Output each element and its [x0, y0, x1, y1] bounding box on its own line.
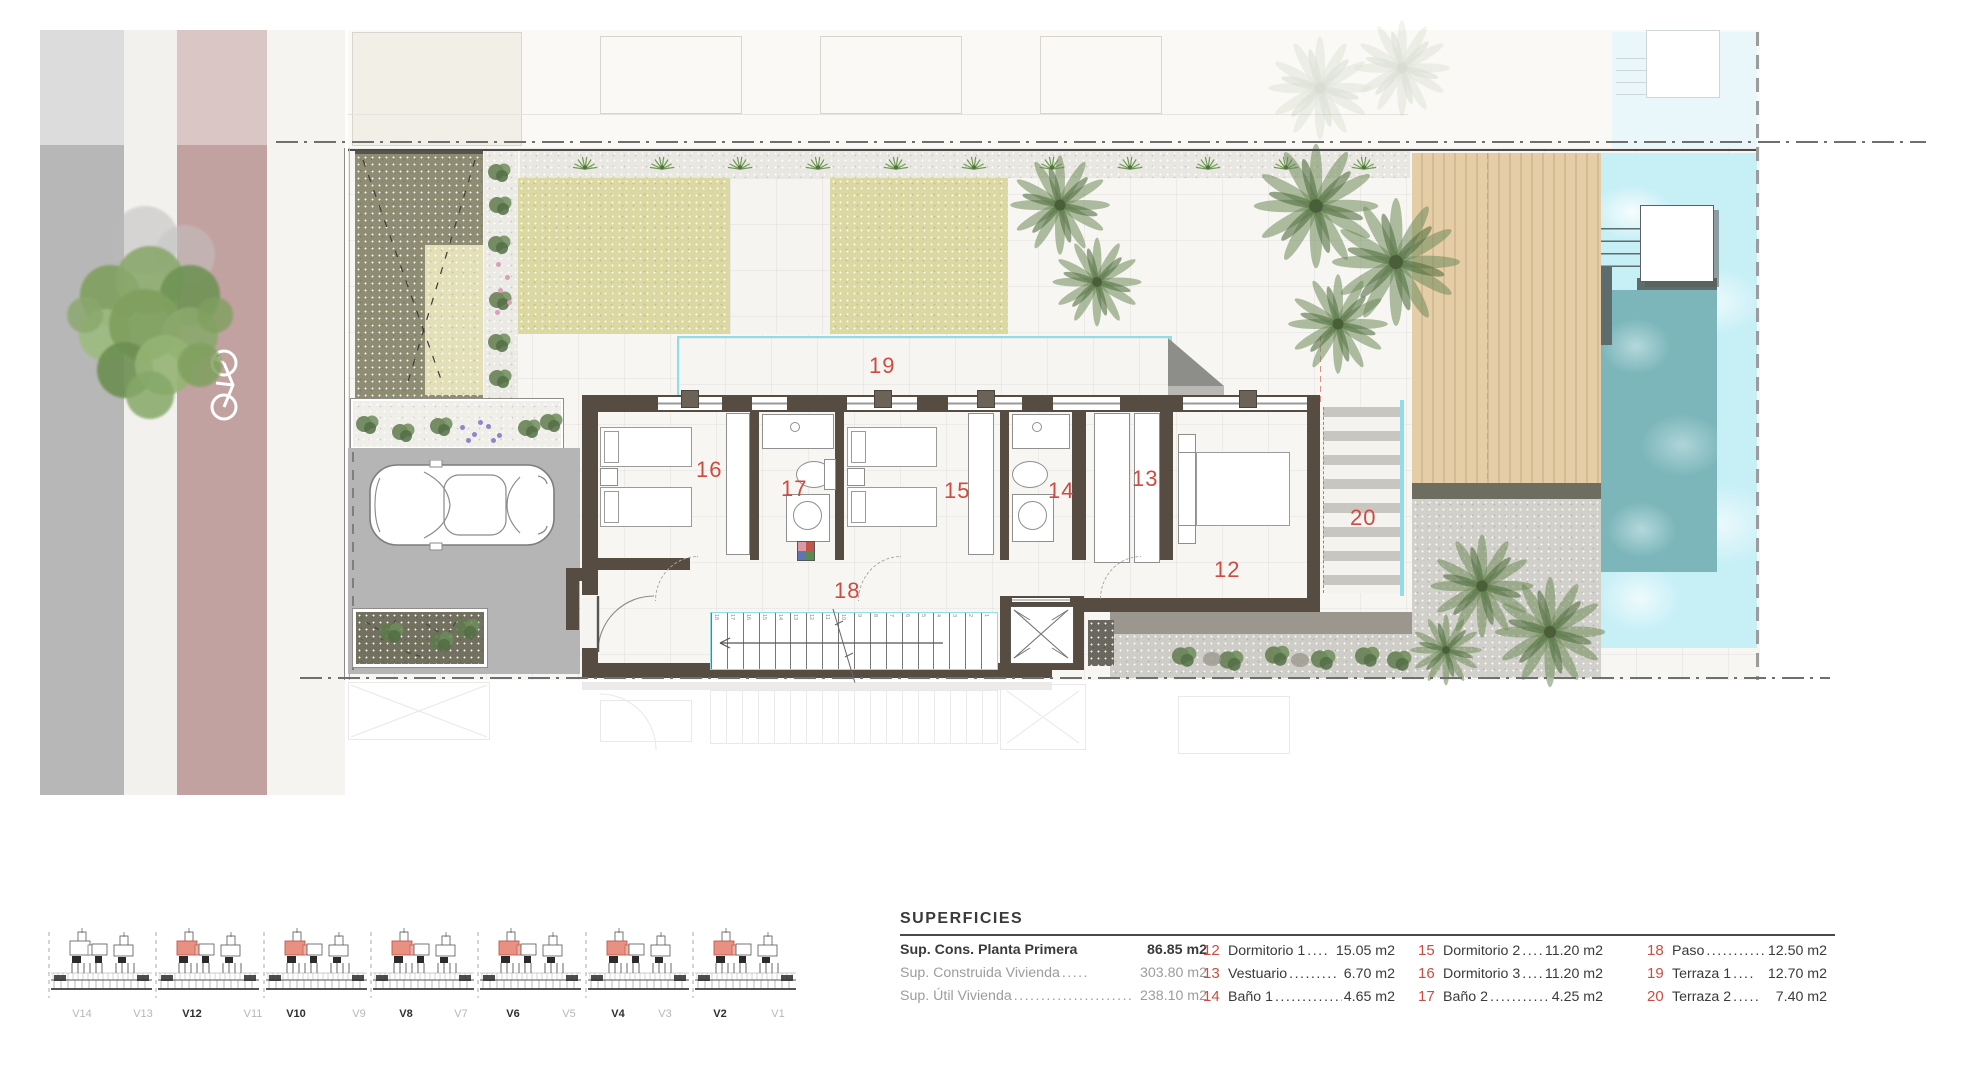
section-line: [1487, 153, 1488, 481]
elevation-label-v12: V12: [182, 1008, 202, 1020]
bed-icon: [847, 427, 937, 467]
bike-lane-light: [177, 30, 267, 145]
exterior-wall-right: [1307, 395, 1320, 612]
bush-icon: [518, 416, 542, 440]
faucet-icon: [1032, 422, 1042, 432]
tree-foliage: [126, 371, 174, 419]
stair-direction-arrow: [705, 595, 1045, 695]
legend-dots: ................: [1490, 989, 1550, 1005]
tree-foliage: [178, 343, 222, 387]
bush-icon: [356, 412, 380, 436]
legend-dots: ................: [1275, 989, 1342, 1005]
legend-room-row: 14 Baño 1 ................ 4.65 m2: [1203, 988, 1395, 1011]
room-number: 16: [1418, 965, 1443, 982]
lawn-patch-right: [830, 178, 1008, 334]
room-number: 18: [1647, 942, 1672, 959]
nightstand: [1178, 524, 1196, 544]
flower-dot: [486, 424, 491, 429]
elevation-module: [48, 928, 155, 1003]
flower-dot: [460, 425, 465, 430]
site-wall-top: [348, 149, 1757, 151]
legend-dots: ....: [1307, 943, 1334, 959]
room-name: Dormitorio 1: [1228, 943, 1305, 959]
ghost-wall: [582, 682, 1052, 690]
legend-label: Sup. Cons. Planta Primera: [900, 942, 1077, 958]
partition-16-17: [750, 412, 759, 560]
room-area: 12.50 m2: [1768, 943, 1827, 959]
room-area: 6.70 m2: [1344, 966, 1395, 982]
nightstand: [600, 468, 618, 486]
elevation-label-v9: V9: [352, 1008, 365, 1020]
bush-icon: [455, 615, 481, 641]
legend-label: Sup. Útil Vivienda: [900, 988, 1012, 1004]
walkway-dark-band: [1110, 612, 1412, 634]
ghost-pool-steps: [1616, 58, 1646, 96]
ghost-block-outline: [820, 36, 962, 114]
entry-door-arc-icon: [596, 592, 660, 656]
elevation-label-v6: V6: [506, 1008, 519, 1020]
legend-room-row: 19 Terraza 1 .... 12.70 m2: [1647, 965, 1827, 988]
floor-plan-canvas: 181716151413121110987654321 19 16 17 15 …: [0, 0, 1982, 1080]
room-area: 15.05 m2: [1336, 943, 1395, 959]
room-number: 17: [1418, 988, 1443, 1005]
bush-icon: [379, 619, 405, 645]
grass-tuft-icon: [726, 150, 754, 176]
room-name: Dormitorio 3: [1443, 966, 1520, 982]
toilet-tank: [824, 459, 836, 490]
room-number: 20: [1647, 988, 1672, 1005]
room-area: 11.20 m2: [1545, 943, 1603, 959]
room-name: Vestuario: [1228, 966, 1287, 982]
room-number: 14: [1203, 988, 1228, 1005]
garden-walkway: [730, 178, 830, 334]
elevation-label-v13: V13: [133, 1008, 153, 1020]
legend-dots: ....: [1733, 966, 1766, 982]
garden-dashed-diagonals: [355, 150, 483, 395]
elevation-module: [263, 928, 370, 1003]
toilet-icon: [1012, 461, 1048, 488]
elevation-label-v8: V8: [399, 1008, 412, 1020]
tree-foliage: [67, 297, 103, 333]
legend-room-row: 13 Vestuario ......... 6.70 m2: [1203, 965, 1395, 988]
elevation-label-v14: V14: [72, 1008, 92, 1020]
window: [1053, 397, 1120, 410]
room-area: 12.70 m2: [1768, 966, 1827, 982]
elevation-module: [477, 928, 584, 1003]
elevation-label-v10: V10: [286, 1008, 306, 1020]
window-mullion-icon: [874, 390, 892, 408]
legend-value: 238.10 m2: [1140, 988, 1207, 1004]
window-mullion-icon: [977, 390, 995, 408]
sidewalk-strip: [267, 30, 345, 795]
elevation-label-v7: V7: [454, 1008, 467, 1020]
flower-dot: [472, 432, 477, 437]
bush-icon: [429, 628, 455, 654]
legend-label: Sup. Construida Vivienda: [900, 965, 1060, 981]
legend-room-row: 12 Dormitorio 1 .... 15.05 m2: [1203, 942, 1395, 965]
flower-dot: [498, 288, 503, 293]
terrace-19: [677, 336, 1172, 398]
pool-inner-deep: [1601, 290, 1717, 572]
bush-icon: [488, 160, 512, 184]
room-name: Terraza 2: [1672, 989, 1731, 1005]
legend-dots: .....: [1733, 989, 1774, 1005]
room-label-17: 17: [781, 476, 807, 502]
legend-dots: .....: [1522, 966, 1543, 982]
room-area: 7.40 m2: [1776, 989, 1827, 1005]
property-line-bottom: [300, 677, 1830, 679]
legend: SUPERFICIES Sup. Cons. Planta Primera 86…: [900, 910, 1835, 1020]
legend-dots: .....: [1062, 965, 1138, 981]
room-label-18: 18: [834, 578, 860, 604]
flower-dot: [466, 438, 471, 443]
gravel-mound: [1203, 652, 1221, 666]
double-bed-icon: [1196, 452, 1290, 526]
room-label-19: 19: [869, 353, 895, 379]
deck-edge-band: [1412, 483, 1601, 499]
legend-dots: ......................: [1014, 988, 1138, 1004]
room-label-15: 15: [944, 478, 970, 504]
legend-col-1: 12 Dormitorio 1 .... 15.05 m2 13 Vestuar…: [1203, 942, 1395, 1011]
legend-summary-row: Sup. Construida Vivienda ..... 303.80 m2: [900, 965, 1207, 988]
legend-room-row: 17 Baño 2 ................ 4.25 m2: [1418, 988, 1603, 1011]
partition-15-14: [1000, 412, 1009, 560]
room-area: 11.20 m2: [1545, 966, 1603, 982]
elevation-label-v4: V4: [611, 1008, 624, 1020]
room-area: 4.65 m2: [1344, 989, 1395, 1005]
elevation-labels: V14V13V12V11V10V9V8V7V6V5V4V3V2V1: [0, 1008, 820, 1024]
pool-wall-vertical: [1601, 267, 1612, 345]
elevator-door-line: [1012, 598, 1070, 602]
elevation-label-v11: V11: [244, 1008, 263, 1020]
flower-dot: [507, 300, 512, 305]
legend-summary-row: Sup. Útil Vivienda .....................…: [900, 988, 1207, 1011]
legend-dots: .....: [1522, 943, 1543, 959]
flower-dot: [505, 275, 510, 280]
car-icon: [368, 460, 558, 552]
ghost-elevator: [1000, 684, 1086, 750]
legend-room-row: 16 Dormitorio 3 ..... 11.20 m2: [1418, 965, 1603, 988]
grass-tuft-icon: [882, 150, 910, 176]
terrace-20-louvers: [1323, 407, 1402, 593]
elevation-module: [585, 928, 692, 1003]
elevation-module: [370, 928, 477, 1003]
room-label-20: 20: [1350, 505, 1376, 531]
elevation-strip: [48, 928, 808, 1000]
elevation-label-v1: V1: [771, 1008, 784, 1020]
bush-icon: [488, 232, 512, 256]
room-label-12: 12: [1214, 557, 1240, 583]
side-planter-strip: [484, 150, 518, 400]
ghost-palm-icon: [1348, 14, 1456, 122]
legend-col-3: 18 Paso .............. 12.50 m2 19 Terra…: [1647, 942, 1827, 1011]
property-line-right: [1756, 32, 1759, 680]
property-line-top: [276, 141, 1926, 143]
ghost-pool-platform: [1646, 30, 1720, 98]
bush-icon: [1219, 647, 1245, 673]
mosaic-tile: [797, 541, 815, 561]
nightstand: [1178, 434, 1196, 454]
terrace-20-pool-edge: [1400, 400, 1404, 596]
legend-room-row: 20 Terraza 2 ..... 7.40 m2: [1647, 988, 1827, 1011]
bush-icon: [1355, 643, 1381, 669]
bush-icon: [430, 414, 454, 438]
exterior-wall-bottom-rightwing: [1050, 598, 1320, 612]
room-label-14: 14: [1048, 478, 1074, 504]
tree-foliage: [197, 297, 233, 333]
room-name: Baño 2: [1443, 989, 1488, 1005]
partition-17-15: [835, 412, 844, 560]
sink-icon: [1018, 501, 1047, 530]
flower-dot: [491, 438, 496, 443]
wardrobe: [968, 413, 994, 555]
grass-tuft-icon: [804, 150, 832, 176]
bed-icon: [600, 427, 692, 467]
room-area: 4.25 m2: [1552, 989, 1603, 1005]
bed-icon: [600, 487, 692, 527]
legend-value: 303.80 m2: [1140, 965, 1207, 981]
sink-icon: [793, 501, 822, 530]
exterior-wall-left: [582, 395, 598, 595]
legend-room-row: 18 Paso .............. 12.50 m2: [1647, 942, 1827, 965]
lawn-patch-left: [518, 178, 730, 334]
palm-tree-icon: [1282, 268, 1394, 380]
elevation-label-v3: V3: [658, 1008, 671, 1020]
bath-counter: [762, 414, 834, 449]
site-boundary-left2: [349, 148, 350, 680]
bush-icon: [489, 193, 513, 217]
bush-icon: [488, 330, 512, 354]
flower-dot: [478, 420, 483, 425]
grass-tuft-icon: [1116, 150, 1144, 176]
window-mullion-icon: [681, 390, 699, 408]
ghost-room: [1178, 696, 1290, 754]
ghost-block-outline: [352, 32, 522, 146]
street-tree-icon: [50, 200, 260, 430]
ghost-block-outline: [1040, 36, 1162, 114]
legend-summary: Sup. Cons. Planta Primera 86.85 m2 Sup. …: [900, 942, 1207, 1011]
palm-tree-icon: [1047, 232, 1147, 332]
room-label-16: 16: [696, 457, 722, 483]
bush-icon: [1265, 642, 1291, 668]
grass-tuft-icon: [1194, 150, 1222, 176]
room-number: 15: [1418, 942, 1443, 959]
nightstand: [847, 468, 865, 486]
room-number: 12: [1203, 942, 1228, 959]
ghost-line: [348, 114, 1408, 115]
bed-icon: [847, 487, 937, 527]
terrace-19-canopy-base: [1168, 386, 1224, 395]
elevation-label-v2: V2: [713, 1008, 726, 1020]
site-boundary-left: [344, 148, 345, 680]
pool-platform: [1640, 205, 1714, 282]
flower-dot: [495, 310, 500, 315]
elevation-label-v5: V5: [562, 1008, 575, 1020]
legend-summary-row: Sup. Cons. Planta Primera 86.85 m2: [900, 942, 1207, 965]
wardrobe: [1094, 413, 1130, 563]
pool-steps: [1601, 228, 1640, 278]
grass-tuft-icon: [960, 150, 988, 176]
gravel-mound: [1291, 653, 1309, 667]
legend-room-row: 15 Dormitorio 2 ..... 11.20 m2: [1418, 942, 1603, 965]
room-name: Terraza 1: [1672, 966, 1731, 982]
grass-tuft-icon: [648, 150, 676, 176]
room-name: Dormitorio 2: [1443, 943, 1520, 959]
faucet-icon: [790, 422, 800, 432]
flower-dot: [496, 262, 501, 267]
window-mullion-icon: [1239, 390, 1257, 408]
bush-icon: [1172, 643, 1198, 669]
ghost-door-arc: [598, 692, 658, 752]
room-name: Baño 1: [1228, 989, 1273, 1005]
legend-dots: ..............: [1706, 943, 1766, 959]
elevator-x-icon: [1010, 606, 1072, 662]
legend-col-2: 15 Dormitorio 2 ..... 11.20 m2 16 Dormit…: [1418, 942, 1603, 1011]
room-label-13: 13: [1132, 466, 1158, 492]
room-name: Paso: [1672, 943, 1704, 959]
elevation-module: [155, 928, 262, 1003]
ghost-block-outline: [600, 36, 742, 114]
partition-13-12: [1160, 412, 1173, 560]
wardrobe: [726, 413, 750, 555]
palm-tree-icon: [1488, 570, 1612, 694]
ghost-stairs: [710, 690, 998, 744]
window: [752, 397, 787, 410]
grass-tuft-icon: [571, 150, 599, 176]
utility-block: [1088, 620, 1114, 666]
ghost-garage-court: [348, 682, 490, 740]
legend-value: 86.85 m2: [1147, 942, 1207, 958]
flower-dot: [497, 433, 502, 438]
legend-rule: [900, 934, 1835, 936]
porch-wall: [566, 568, 579, 630]
street-asphalt-strip-light: [40, 30, 124, 145]
bush-icon: [1311, 646, 1337, 672]
legend-dots: .........: [1289, 966, 1342, 982]
headboard: [1178, 452, 1196, 526]
bush-icon: [392, 420, 416, 444]
bath-counter: [1012, 414, 1070, 449]
legend-title: SUPERFICIES: [900, 910, 1835, 928]
bush-icon: [540, 410, 564, 434]
bush-icon: [489, 366, 513, 390]
room-number: 19: [1647, 965, 1672, 982]
room-number: 13: [1203, 965, 1228, 982]
elevation-module: [692, 928, 799, 1003]
